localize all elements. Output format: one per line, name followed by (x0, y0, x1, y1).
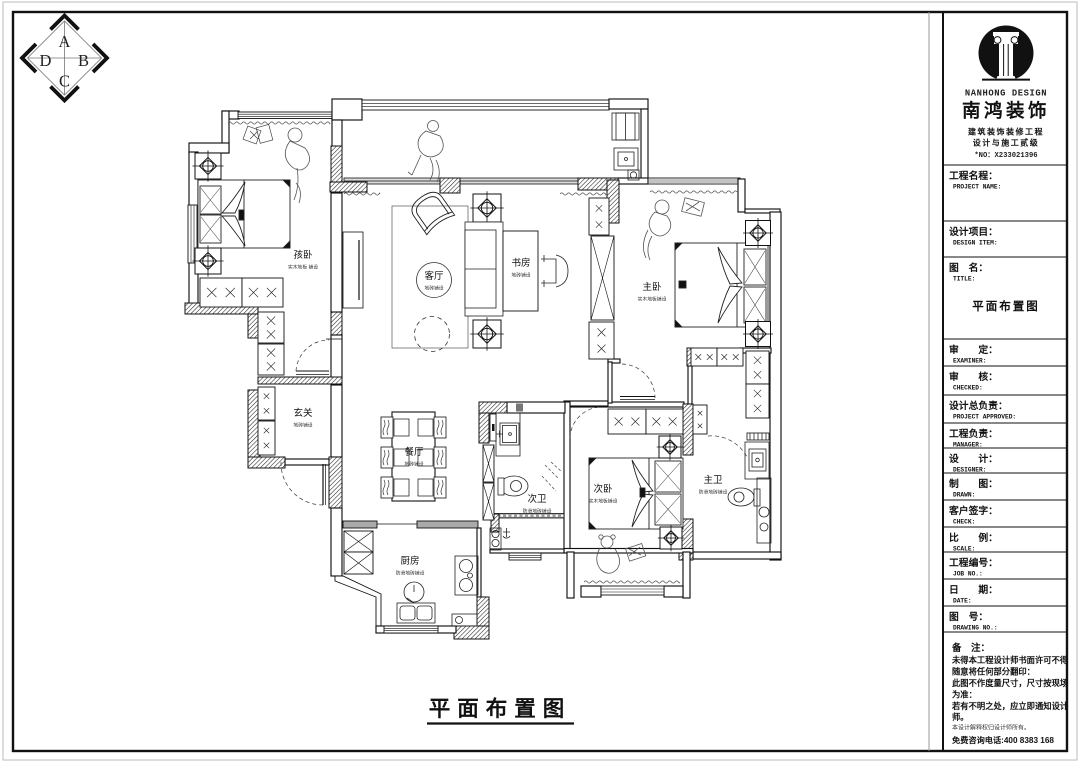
svg-text:JOB NO.:: JOB NO.: (953, 571, 983, 578)
svg-text:NANHONG DESIGN: NANHONG DESIGN (965, 89, 1047, 99)
svg-text:比 例：: 比 例： (949, 531, 998, 544)
svg-text:CHECKED:: CHECKED: (953, 385, 983, 392)
svg-text:设计与施工贰级: 设计与施工贰级 (973, 138, 1040, 148)
svg-text:随意将任何部分翻印：: 随意将任何部分翻印： (952, 667, 1035, 677)
svg-text:DRAWING NO.:: DRAWING NO.: (953, 625, 998, 632)
svg-text:B: B (78, 51, 89, 70)
svg-text:平面布置图: 平面布置图 (972, 299, 1040, 313)
svg-text:TITLE:: TITLE: (953, 276, 975, 283)
svg-text:EXAMINER:: EXAMINER: (953, 358, 986, 365)
svg-text:备 注：: 备 注： (951, 642, 990, 654)
svg-text:南鸿装饰: 南鸿装饰 (962, 100, 1050, 121)
svg-text:实木地板铺设: 实木地板铺设 (638, 296, 667, 303)
svg-text:工程编号：: 工程编号： (949, 556, 998, 569)
svg-text:C: C (59, 72, 70, 91)
svg-text:设 计：: 设 计： (949, 452, 998, 465)
svg-text:实木地板 铺设: 实木地板 铺设 (288, 264, 318, 271)
svg-text:实木地板铺设: 实木地板铺设 (589, 498, 618, 505)
svg-text:*NO：X233021396: *NO：X233021396 (974, 152, 1037, 160)
svg-text:工程名程：: 工程名程： (949, 169, 998, 182)
svg-text:若有不明之处，应立即通知设计: 若有不明之处，应立即通知设计 (951, 701, 1069, 711)
svg-text:PROJECT NAME:: PROJECT NAME: (953, 184, 1001, 191)
svg-text:免费咨询电话:400 8383 168: 免费咨询电话:400 8383 168 (952, 735, 1054, 745)
svg-text:主卧: 主卧 (642, 281, 662, 293)
svg-text:DATE:: DATE: (953, 598, 972, 605)
svg-text:地砖铺设: 地砖铺设 (293, 422, 312, 429)
svg-text:地砖铺设: 地砖铺设 (511, 272, 530, 279)
svg-text:DESIGN ITEM:: DESIGN ITEM: (953, 240, 998, 247)
svg-text:为准：: 为准： (952, 690, 977, 700)
svg-text:图 名：: 图 名： (949, 261, 988, 274)
svg-text:平面布置图: 平面布置图 (429, 696, 572, 721)
svg-text:DRAWN:: DRAWN: (953, 492, 975, 499)
svg-text:A: A (59, 32, 71, 51)
svg-text:CHECK:: CHECK: (953, 519, 975, 526)
svg-text:厨房: 厨房 (400, 555, 419, 567)
svg-text:日 期：: 日 期： (949, 583, 998, 596)
svg-text:图 号：: 图 号： (949, 611, 988, 623)
svg-text:玄关: 玄关 (293, 407, 313, 419)
svg-text:书房: 书房 (511, 257, 530, 269)
svg-text:防滑地砖铺设: 防滑地砖铺设 (523, 508, 552, 515)
svg-text:师。: 师。 (952, 712, 969, 722)
svg-text:本设计解释权归设计师所有。: 本设计解释权归设计师所有。 (952, 724, 1030, 732)
svg-text:孩卧: 孩卧 (293, 249, 313, 261)
svg-text:客户签字：: 客户签字： (948, 504, 998, 517)
svg-text:设计总负责：: 设计总负责： (949, 399, 1008, 412)
svg-text:此图不作度量尺寸，尺寸按现场: 此图不作度量尺寸，尺寸按现场 (952, 678, 1068, 688)
svg-text:防滑地砖铺设: 防滑地砖铺设 (396, 570, 425, 577)
svg-text:主卫: 主卫 (703, 474, 723, 486)
svg-text:审 核：: 审 核： (949, 370, 998, 383)
svg-text:设计项目：: 设计项目： (949, 225, 998, 238)
svg-text:PROJECT APPROVED:: PROJECT APPROVED: (953, 414, 1016, 421)
svg-text:制 图：: 制 图： (949, 477, 998, 490)
svg-text:地砖铺设: 地砖铺设 (404, 461, 423, 468)
svg-text:防滑地砖铺设: 防滑地砖铺设 (699, 489, 728, 496)
svg-text:未得本工程设计师书面许可不得: 未得本工程设计师书面许可不得 (951, 655, 1069, 665)
svg-text:餐厅: 餐厅 (404, 446, 424, 458)
svg-text:建筑装饰装修工程: 建筑装饰装修工程 (967, 127, 1044, 137)
svg-text:审 定：: 审 定： (949, 343, 998, 356)
svg-text:D: D (40, 51, 52, 70)
svg-text:地砖铺设: 地砖铺设 (424, 285, 443, 292)
svg-text:客厅: 客厅 (424, 270, 444, 282)
svg-text:次卫: 次卫 (527, 493, 547, 505)
svg-text:次卧: 次卧 (593, 483, 613, 495)
svg-text:工程负责：: 工程负责： (949, 427, 998, 440)
